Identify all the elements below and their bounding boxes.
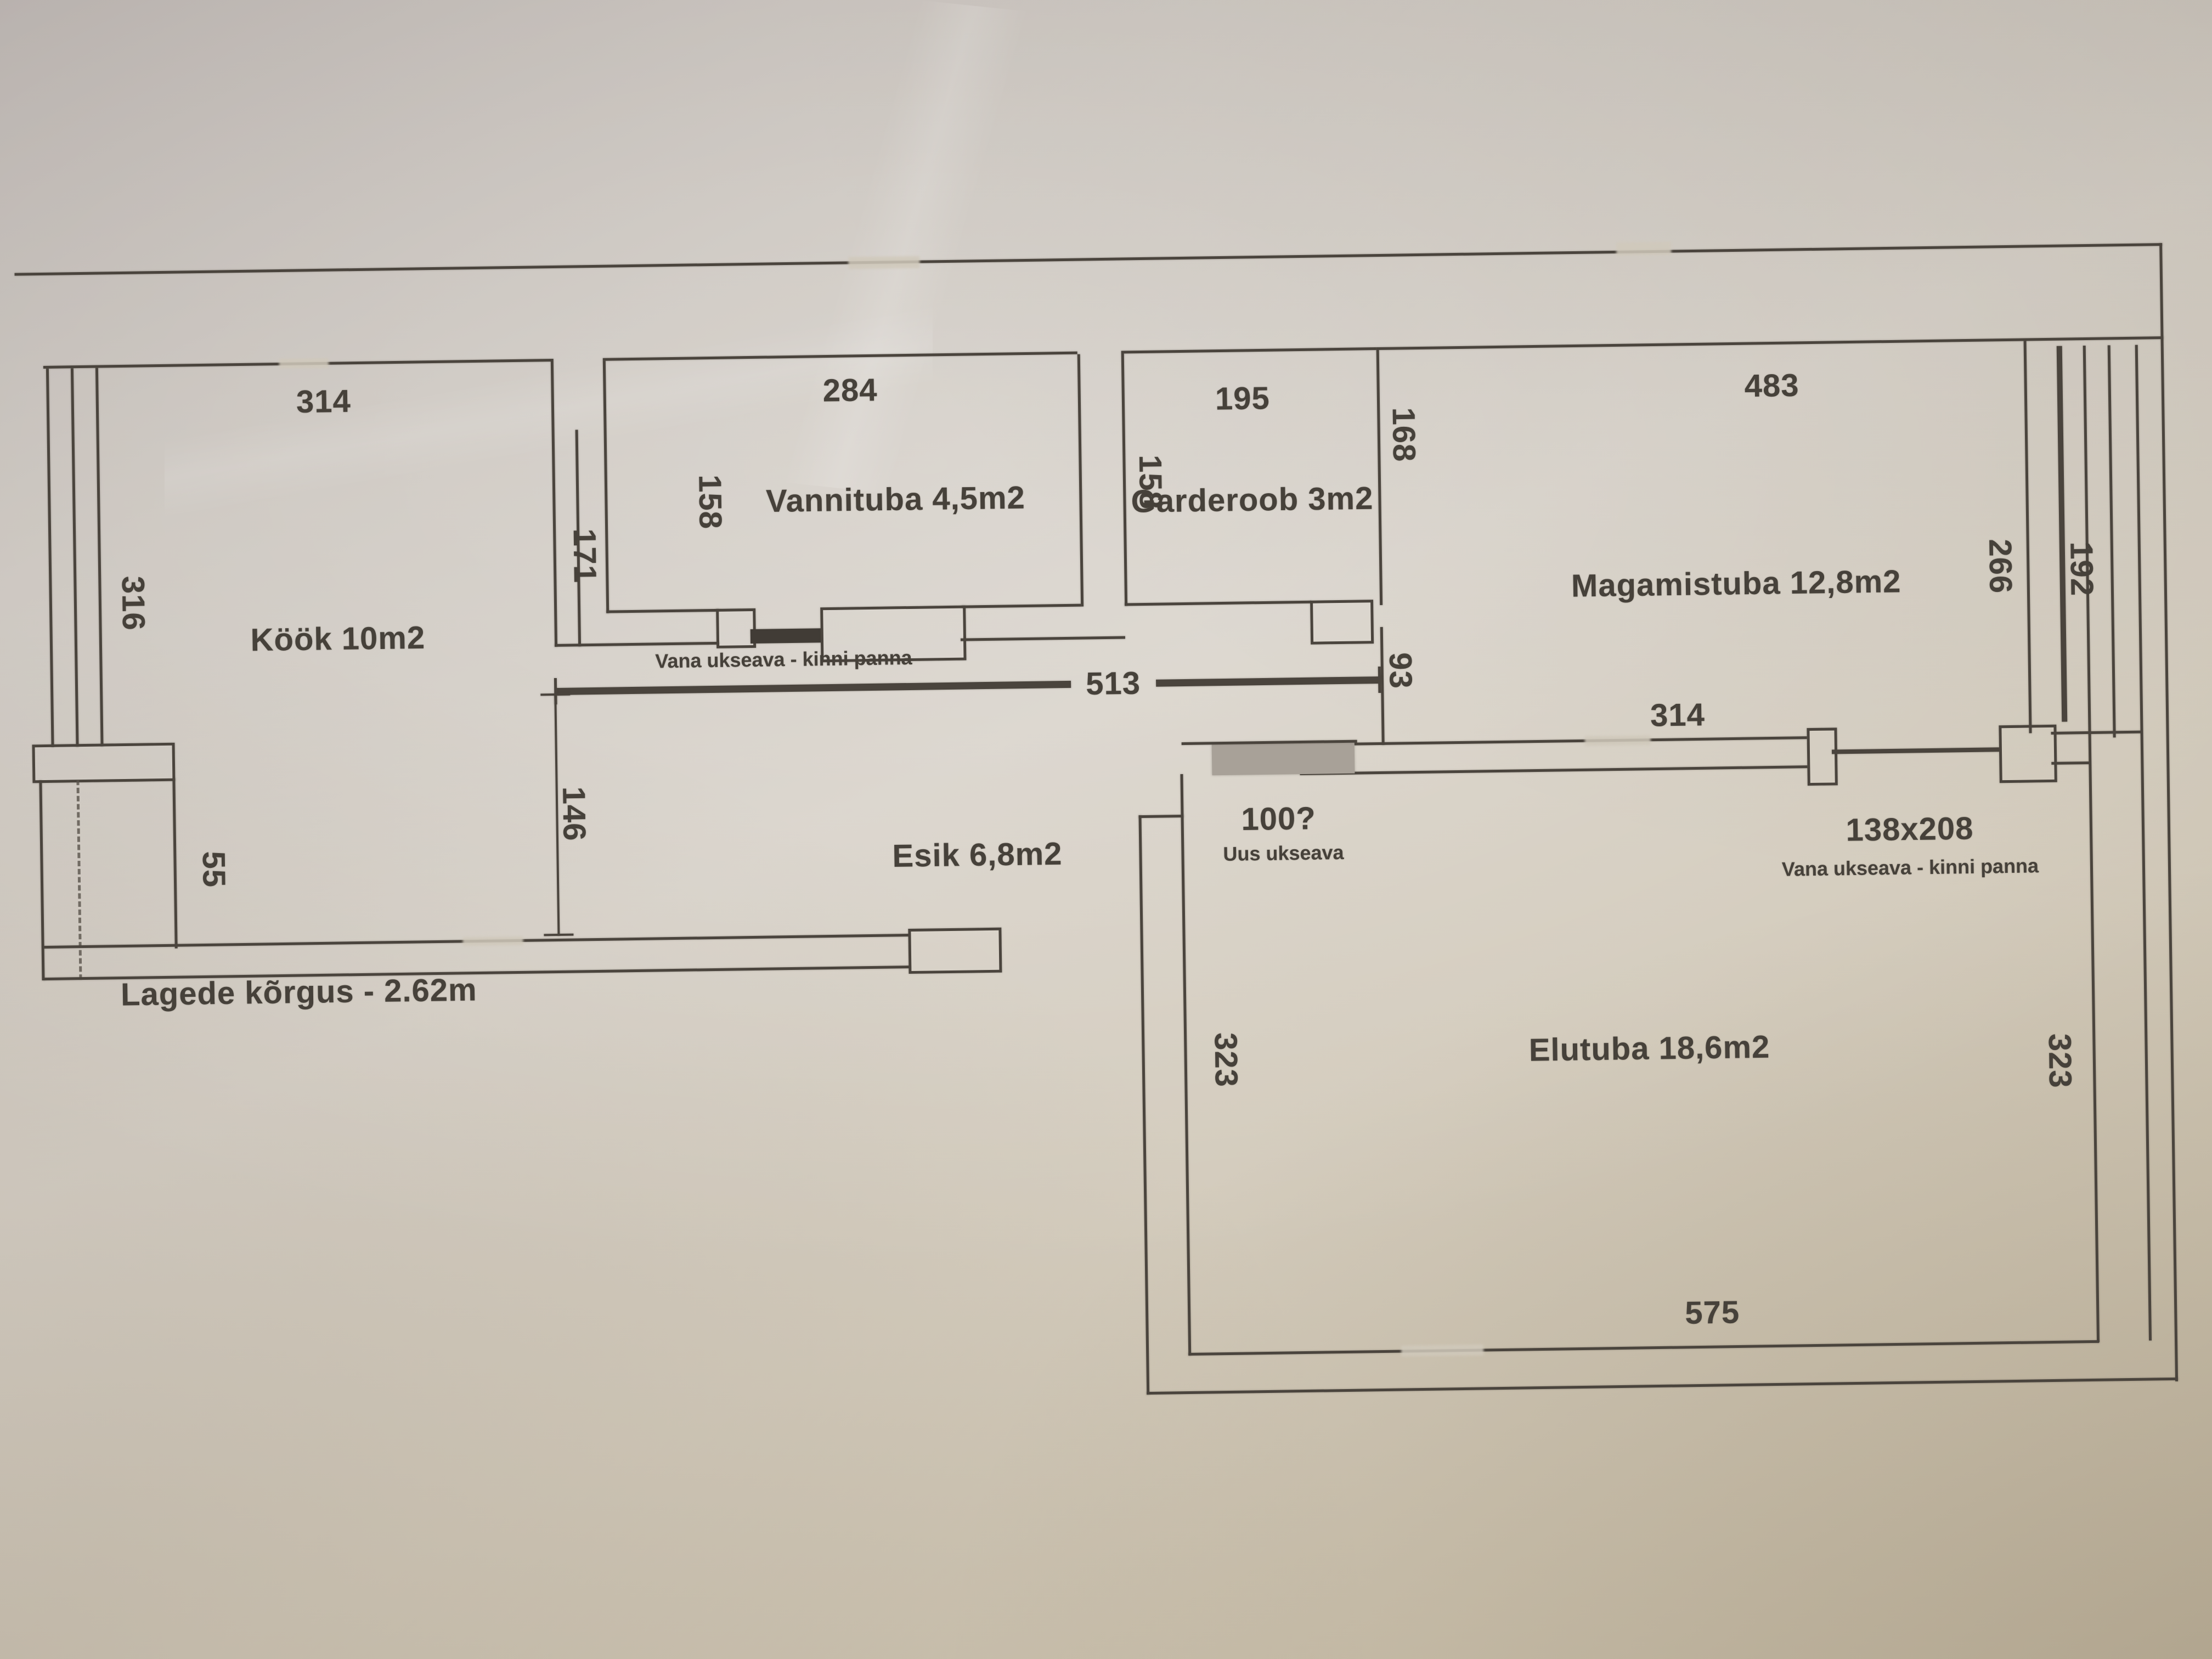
window-kook-left-line3: [95, 368, 104, 747]
wall-vannituba-bottom-seg1: [606, 609, 719, 613]
dim-elutuba-right: 323: [2041, 1033, 2079, 1088]
dim-magamistuba-top: 483: [1744, 367, 1799, 404]
wall-vannituba-left: [603, 361, 609, 613]
dim-vannituba-left: 158: [691, 475, 729, 530]
print-gap: [1585, 735, 1651, 746]
wall-elutuba-top-right-lower: [2051, 761, 2090, 765]
wall-magamistuba-top: [1376, 336, 2164, 350]
new-door-opening: [1212, 743, 1355, 776]
wall-garderoob-top: [1121, 347, 1376, 353]
floor-plan: 314 316 171 55 284 158 195 158 483 168 9…: [0, 0, 2212, 1659]
wall-vannituba-top: [603, 352, 1077, 361]
dim-esik-width: 513: [1078, 664, 1149, 702]
door-jamb-magamistuba-left: [1807, 727, 1837, 786]
dim-line-513-right: [1156, 676, 1381, 687]
dim-tick-513-right: [1378, 667, 1381, 693]
wall-elutuba-bottom-inner: [1188, 1340, 2099, 1356]
door-jamb-magamistuba-right: [1999, 725, 2057, 783]
wall-magamistuba-bottom-upper: [1355, 736, 1807, 746]
wall-kook-step-cap: [32, 743, 175, 783]
wall-kook-step-inner: [172, 778, 177, 949]
room-label-vannituba: Vannituba 4,5m2: [766, 479, 1026, 520]
dim-magamistuba-right: 266: [1982, 539, 2019, 594]
note-ceiling-height: Lagede kõrgus - 2.62m: [121, 972, 477, 1013]
wall-esik-end-cap: [908, 928, 1002, 974]
room-label-garderoob: Garderoob 3m2: [1131, 480, 1374, 520]
wall-magamistuba-bottom-lower: [1300, 765, 1807, 775]
wall-outer-right: [2159, 243, 2178, 1381]
wall-kook-step-dashed: [76, 780, 82, 980]
wall-vannituba-right: [1077, 354, 1084, 607]
wall-kook-right: [551, 362, 557, 647]
dim-vannituba-top: 284: [822, 371, 878, 409]
dim-tick-146-bottom: [544, 934, 573, 936]
dim-magamistuba-window: 192: [2063, 541, 2100, 597]
wall-garderoob-bottom: [1125, 601, 1311, 606]
wall-outer-bottom: [1147, 1378, 2178, 1395]
floor-plan-photo: 314 316 171 55 284 158 195 158 483 168 9…: [0, 0, 2212, 1659]
dim-magamistuba-left-lower: 93: [1382, 652, 1419, 689]
dim-elutuba-left: 323: [1207, 1032, 1245, 1088]
room-label-elutuba: Elutuba 18,6m2: [1528, 1029, 1770, 1069]
dim-kook-left: 316: [115, 575, 152, 631]
print-gap: [848, 256, 919, 269]
dim-new-door: 100?: [1241, 800, 1316, 838]
window-right-line2: [2108, 345, 2116, 737]
window-right-line1: [2083, 346, 2100, 1342]
wall-old-door-filled: [751, 628, 822, 644]
dim-kook-top: 314: [296, 383, 351, 420]
wall-magamistuba-right-inner: [2024, 341, 2032, 733]
door-jamb-garderoob: [1310, 600, 1374, 645]
wall-magamistuba-left-upper: [1376, 350, 1383, 605]
dim-esik-depth: 146: [555, 786, 592, 842]
wall-esik-left-outer: [39, 780, 44, 980]
print-gap: [462, 936, 523, 946]
wall-garderoob-left: [1121, 353, 1127, 606]
dim-kook-step: 55: [195, 851, 233, 888]
wall-elutuba-left-inner: [1180, 774, 1191, 1356]
room-label-esik: Esik 6,8m2: [892, 836, 1063, 874]
note-close-old-door-top: Vana ukseava - kinni panna: [655, 646, 912, 673]
wall-corridor-top-lower2: [961, 636, 1125, 641]
wall-vannituba-bottom-seg2: [962, 604, 1081, 608]
print-gap: [1616, 242, 1671, 256]
door-line-magamistuba: [1832, 747, 1999, 754]
room-label-magamistuba: Magamistuba 12,8m2: [1571, 563, 1901, 604]
dim-garderoob-top: 195: [1215, 380, 1271, 417]
dim-line-513-left: [555, 681, 1071, 695]
note-close-old-door-right: Vana ukseava - kinni panna: [1782, 854, 2039, 881]
window-kook-left-line2: [71, 368, 79, 747]
window-right-line3: [2135, 345, 2152, 1341]
dim-tick-146-top: [540, 693, 570, 696]
wall-elutuba-left-jog: [1138, 815, 1183, 818]
wall-outer-top: [14, 243, 2162, 276]
note-new-door: Uus ukseava: [1223, 841, 1344, 866]
dim-old-door-size: 138x208: [1846, 810, 1974, 848]
print-gap: [279, 358, 329, 369]
dim-magamistuba-left-upper: 168: [1385, 407, 1423, 462]
dim-elutuba-bottom: 575: [1685, 1294, 1740, 1331]
window-magamistuba-thick: [2057, 346, 2068, 722]
window-kook-left-line1: [46, 369, 54, 747]
room-label-kook: Köök 10m2: [250, 619, 425, 658]
dim-kook-right: 171: [566, 528, 603, 584]
dim-magamistuba-bottom: 314: [1650, 696, 1706, 733]
wall-elutuba-top-right-upper: [2051, 731, 2142, 735]
print-gap: [1401, 1344, 1483, 1356]
wall-elutuba-left-outer: [1138, 815, 1149, 1395]
